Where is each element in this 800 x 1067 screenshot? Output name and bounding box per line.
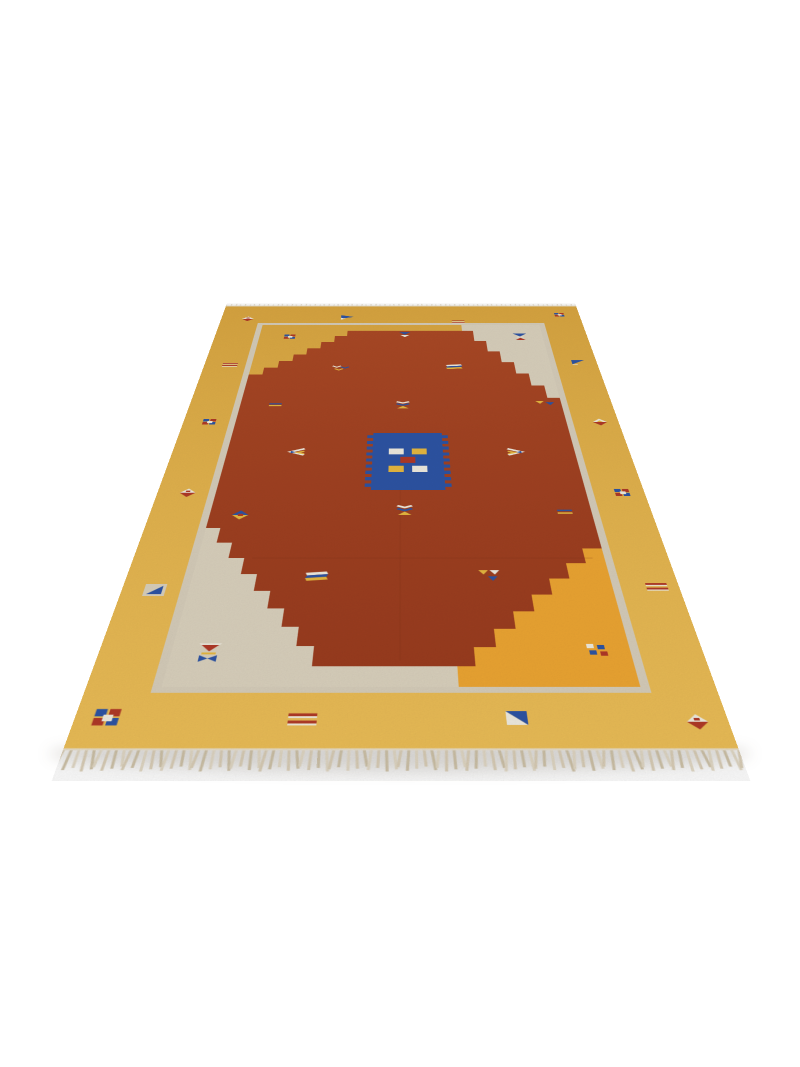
product-photo-scene: Product photograph of a handwoven kilim … (0, 0, 800, 1067)
fringe-bottom (52, 749, 750, 772)
rug-3d-plane (52, 303, 751, 781)
kilim-rug-illustration (52, 303, 751, 781)
